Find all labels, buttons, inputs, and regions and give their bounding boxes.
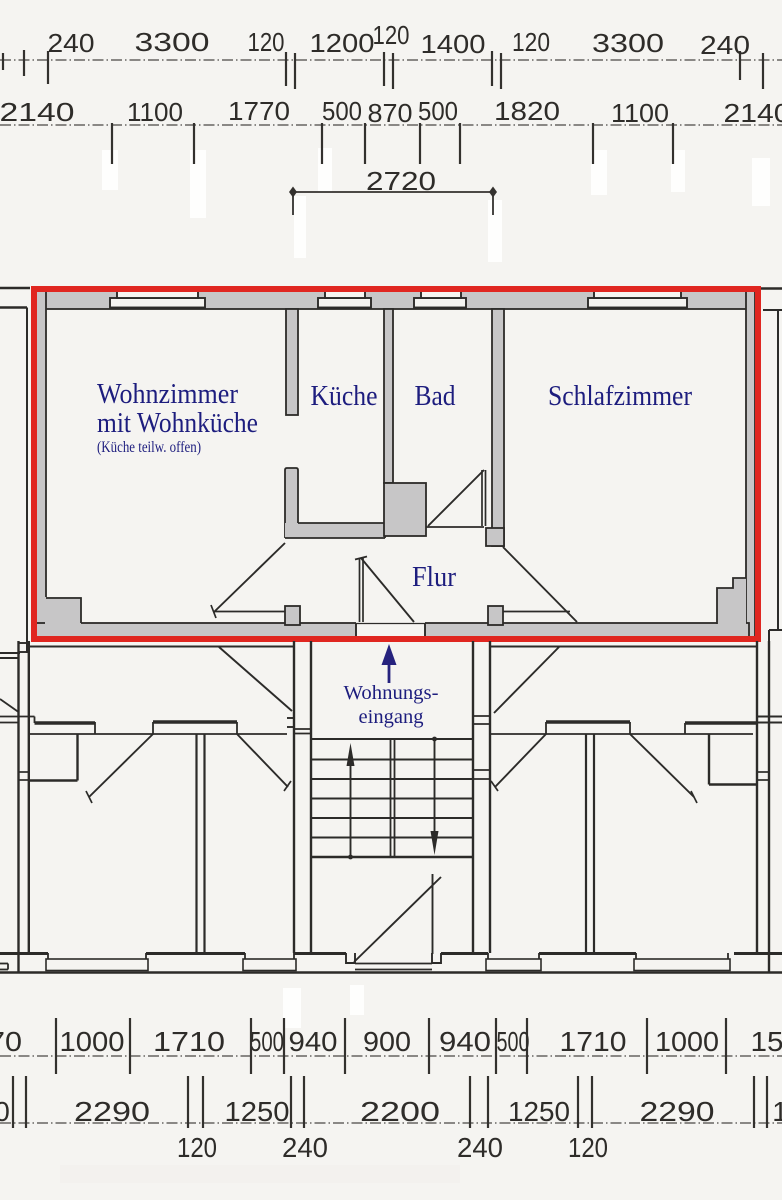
- svg-text:2200: 2200: [360, 1096, 440, 1127]
- svg-text:(Küche teilw. offen): (Küche teilw. offen): [97, 439, 201, 456]
- svg-text:120: 120: [568, 1132, 608, 1163]
- svg-text:1100: 1100: [611, 98, 669, 128]
- svg-text:2720: 2720: [366, 166, 436, 196]
- svg-text:2290: 2290: [640, 1096, 715, 1127]
- svg-text:120: 120: [512, 27, 550, 57]
- svg-text:eingang: eingang: [359, 706, 424, 728]
- svg-text:2140: 2140: [0, 97, 75, 127]
- svg-text:940: 940: [289, 1026, 338, 1057]
- svg-text:0: 0: [0, 1096, 10, 1127]
- svg-text:Wohnungs-: Wohnungs-: [344, 682, 439, 704]
- svg-text:1710: 1710: [153, 1026, 225, 1057]
- svg-text:120: 120: [177, 1132, 217, 1163]
- svg-text:240: 240: [700, 30, 750, 60]
- svg-text:1250: 1250: [508, 1096, 570, 1127]
- svg-text:1710: 1710: [560, 1026, 627, 1057]
- svg-text:900: 900: [363, 1026, 411, 1057]
- svg-text:3300: 3300: [592, 28, 664, 58]
- svg-text:240: 240: [282, 1132, 328, 1163]
- svg-text:1250: 1250: [225, 1096, 290, 1127]
- svg-text:240: 240: [48, 28, 95, 58]
- svg-text:940: 940: [439, 1026, 491, 1057]
- svg-text:Küche: Küche: [311, 380, 378, 412]
- svg-text:500: 500: [497, 1026, 530, 1057]
- svg-text:3300: 3300: [135, 27, 210, 57]
- svg-text:70: 70: [0, 1026, 22, 1057]
- svg-text:240: 240: [457, 1132, 503, 1163]
- svg-text:1100: 1100: [127, 97, 183, 127]
- svg-text:120: 120: [248, 27, 285, 57]
- svg-text:15: 15: [751, 1026, 782, 1057]
- svg-text:Schlafzimmer: Schlafzimmer: [548, 380, 692, 412]
- svg-text:1000: 1000: [60, 1026, 125, 1057]
- svg-text:Bad: Bad: [415, 380, 456, 412]
- svg-text:2140: 2140: [724, 98, 782, 128]
- svg-text:2290: 2290: [74, 1096, 150, 1127]
- svg-text:1820: 1820: [494, 96, 560, 126]
- svg-text:Flur: Flur: [412, 561, 456, 593]
- svg-text:1: 1: [772, 1096, 782, 1127]
- svg-text:500: 500: [418, 96, 458, 126]
- svg-text:500: 500: [250, 1026, 284, 1057]
- svg-text:mit Wohnküche: mit Wohnküche: [97, 407, 258, 439]
- svg-text:Wohnzimmer: Wohnzimmer: [97, 378, 238, 410]
- svg-text:1770: 1770: [228, 96, 290, 126]
- svg-text:870: 870: [368, 98, 413, 128]
- svg-text:1200: 1200: [310, 28, 375, 58]
- svg-text:120: 120: [373, 20, 410, 50]
- svg-text:500: 500: [322, 96, 362, 126]
- svg-text:1000: 1000: [655, 1026, 719, 1057]
- svg-text:1400: 1400: [421, 29, 486, 59]
